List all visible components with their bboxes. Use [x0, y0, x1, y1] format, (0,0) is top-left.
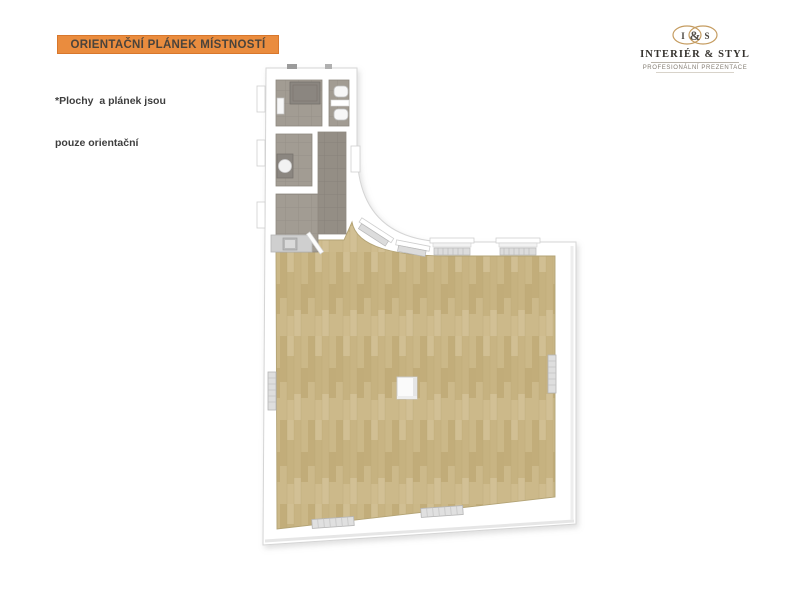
radiator: [434, 248, 470, 255]
floor-plan: [0, 0, 800, 600]
window-group-2: [496, 238, 540, 255]
toilet-1: [334, 86, 348, 97]
left-wall-radiator: [268, 372, 276, 410]
right-wall-radiator: [548, 355, 556, 393]
window-group-1: [430, 238, 474, 255]
sink-1: [277, 98, 284, 114]
radiator: [500, 248, 536, 255]
toilet-2: [334, 109, 348, 120]
page: { "banner": { "label": "ORIENTAČNÍ PLÁNE…: [0, 0, 800, 600]
basin: [279, 160, 292, 173]
main-room-floor: [276, 222, 555, 529]
corridor-floor: [318, 132, 346, 234]
center-column: [397, 377, 417, 399]
